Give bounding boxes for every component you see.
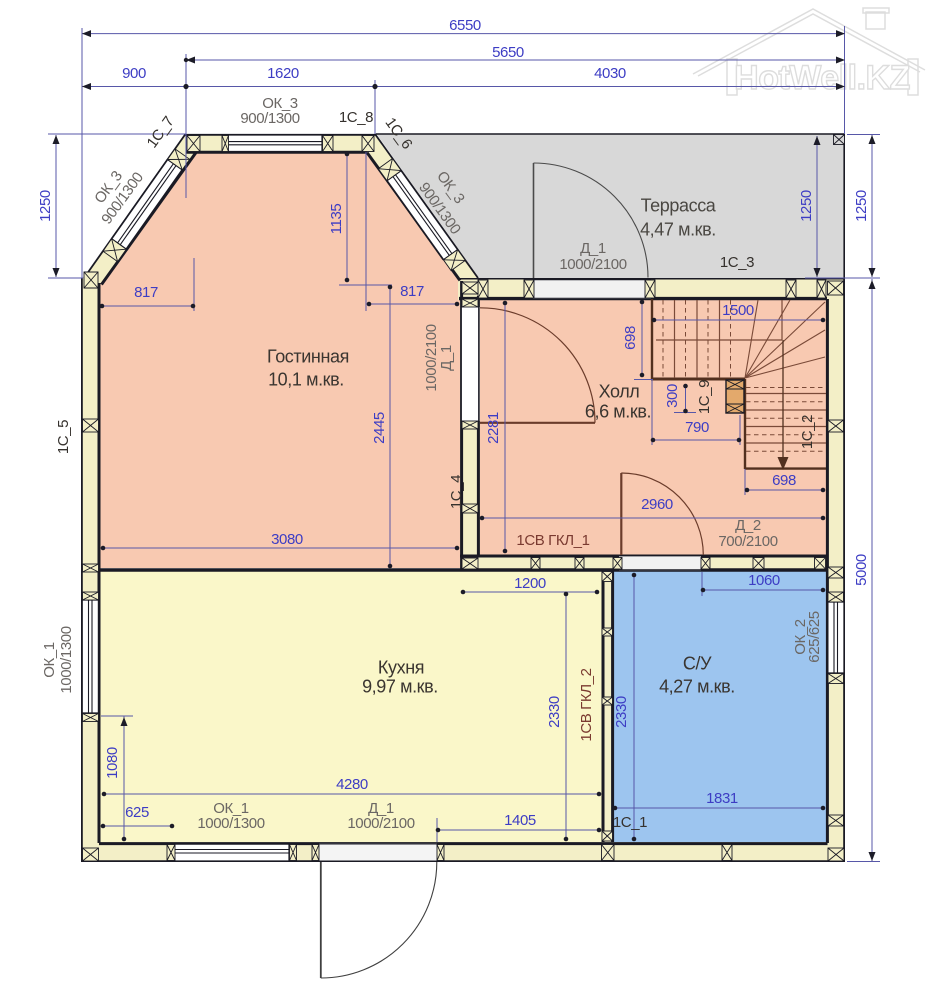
svg-text:1000/2100: 1000/2100 (423, 324, 440, 391)
svg-text:1620: 1620 (267, 65, 299, 82)
svg-text:9,97 м.кв.: 9,97 м.кв. (362, 676, 438, 696)
svg-text:4,47 м.кв.: 4,47 м.кв. (640, 219, 716, 239)
svg-text:817: 817 (400, 283, 424, 300)
svg-text:4280: 4280 (336, 776, 368, 793)
svg-text:ОК_1: ОК_1 (41, 642, 58, 678)
svg-text:6,6 м.кв.: 6,6 м.кв. (585, 401, 651, 421)
svg-text:1СВ ГКЛ_2: 1СВ ГКЛ_2 (578, 668, 595, 741)
svg-text:С/У: С/У (683, 653, 712, 673)
svg-text:10,1 м.кв.: 10,1 м.кв. (268, 369, 344, 389)
svg-text:1500: 1500 (722, 302, 754, 319)
svg-text:1С_1: 1С_1 (613, 814, 647, 831)
svg-text:Д_1: Д_1 (438, 345, 455, 371)
svg-text:1405: 1405 (504, 812, 536, 829)
svg-text:1СВ ГКЛ_1: 1СВ ГКЛ_1 (516, 532, 589, 549)
svg-text:2960: 2960 (641, 496, 673, 513)
svg-text:700/2100: 700/2100 (718, 533, 777, 550)
svg-text:1С_3: 1С_3 (720, 254, 754, 271)
svg-text:1060: 1060 (748, 572, 780, 589)
svg-text:900: 900 (122, 65, 146, 82)
svg-text:1С_8: 1С_8 (339, 109, 373, 126)
svg-text:1С_9: 1С_9 (696, 380, 713, 414)
svg-text:1250: 1250 (37, 190, 54, 222)
svg-text:1000/2100: 1000/2100 (347, 815, 414, 832)
svg-text:1831: 1831 (706, 790, 738, 807)
svg-text:1С_4: 1С_4 (448, 475, 465, 509)
svg-text:4,27 м.кв.: 4,27 м.кв. (659, 676, 735, 696)
svg-text:Кухня: Кухня (378, 657, 424, 677)
svg-text:817: 817 (134, 284, 158, 301)
svg-text:625/625: 625/625 (806, 611, 823, 662)
svg-text:1135: 1135 (328, 204, 345, 235)
svg-text:2330: 2330 (546, 696, 563, 728)
svg-text:790: 790 (685, 419, 709, 436)
svg-text:Холл: Холл (599, 381, 640, 401)
svg-text:2330: 2330 (613, 696, 630, 728)
svg-text:300: 300 (664, 384, 681, 408)
svg-text:1С_2: 1С_2 (799, 415, 816, 449)
svg-text:2445: 2445 (371, 412, 388, 444)
svg-text:1200: 1200 (514, 575, 546, 592)
svg-text:Д_2: Д_2 (735, 517, 761, 534)
svg-text:1080: 1080 (104, 747, 121, 779)
svg-text:1250: 1250 (853, 190, 870, 222)
svg-text:4030: 4030 (594, 65, 626, 82)
svg-text:1000/2100: 1000/2100 (559, 256, 626, 273)
svg-text:Террасса: Террасса (641, 195, 717, 215)
svg-text:1000/1300: 1000/1300 (58, 626, 75, 693)
svg-text:625: 625 (125, 804, 149, 821)
svg-text:Д_1: Д_1 (580, 240, 606, 257)
svg-text:6550: 6550 (449, 17, 481, 34)
svg-text:698: 698 (772, 472, 796, 489)
svg-text:3080: 3080 (271, 531, 303, 548)
svg-text:Гостинная: Гостинная (267, 346, 349, 366)
svg-text:698: 698 (622, 326, 639, 350)
svg-text:5650: 5650 (492, 44, 524, 61)
svg-text:900/1300: 900/1300 (240, 110, 299, 127)
svg-text:HotWell.KZ: HotWell.KZ (734, 59, 910, 97)
svg-text:2281: 2281 (485, 412, 502, 444)
svg-text:1250: 1250 (798, 190, 815, 222)
svg-text:5000: 5000 (853, 554, 870, 586)
svg-text:1000/1300: 1000/1300 (197, 815, 264, 832)
svg-text:1С_5: 1С_5 (55, 420, 72, 454)
